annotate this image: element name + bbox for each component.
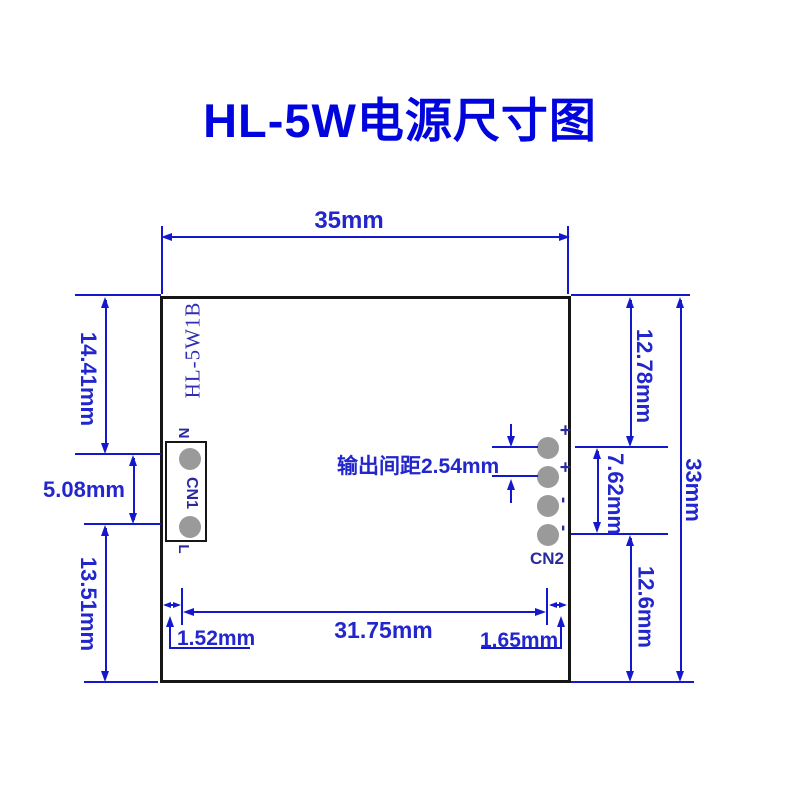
arrow-left-icon: [183, 608, 194, 616]
leader-line-1-65: [560, 626, 562, 648]
dim-tick-bottom-right: [546, 588, 548, 625]
pitch-line-top: [492, 446, 538, 448]
cn2-pin1-polarity: +: [555, 421, 573, 439]
arrow-up-icon: [101, 525, 109, 536]
arrow-up-icon: [626, 297, 634, 308]
dim-line-5-08: [133, 458, 135, 520]
ext-line-left-pin-n: [75, 453, 161, 455]
dim-line-35: [171, 236, 560, 238]
dim-line-13-51: [105, 528, 107, 673]
arrow-right-icon: [535, 608, 546, 616]
silkscreen-model-text: HL-5W1B: [181, 293, 205, 408]
dim-label-right-middle: 7.62mm: [602, 444, 628, 544]
leader-line-1-52: [169, 626, 171, 648]
pitch-leader-bottom: [510, 489, 512, 503]
arrow-down-icon: [129, 513, 137, 524]
arrow-right-icon: [173, 602, 181, 608]
arrow-up-icon: [676, 297, 684, 308]
arrow-down-icon: [101, 443, 109, 454]
dim-label-right-top: 12.78mm: [631, 321, 657, 431]
ext-line-left-pin-l: [84, 523, 161, 525]
cn1-pin-n-pad: [179, 448, 201, 470]
pitch-line-bottom: [492, 475, 538, 477]
cn2-pin4-polarity: -: [554, 519, 572, 537]
dim-label-board-height: 33mm: [680, 455, 706, 525]
arrow-down-icon: [593, 522, 601, 533]
page-title: HL-5W电源尺寸图: [100, 82, 700, 151]
cn2-pin2-polarity: +: [555, 458, 573, 476]
arrow-down-icon: [676, 671, 684, 682]
arrow-left-icon: [549, 602, 557, 608]
ext-line-left-top: [75, 294, 161, 296]
dim-label-left-middle: 5.08mm: [38, 477, 130, 503]
dim-label-bottom-span: 31.75mm: [326, 617, 441, 644]
dim-label-bottom-right-offset: 1.65mm: [480, 629, 558, 653]
cn2-label: CN2: [530, 549, 564, 569]
dim-label-right-bottom: 12.6mm: [633, 560, 659, 655]
arrow-right-icon: [559, 602, 567, 608]
arrow-down-icon: [626, 671, 634, 682]
dim-tick-bottom-left: [181, 588, 183, 625]
dim-label-board-width: 35mm: [294, 207, 404, 235]
dim-line-31-75: [191, 611, 539, 613]
arrow-up-icon: [626, 535, 634, 546]
dim-line-14-41: [105, 300, 107, 445]
dim-label-left-top: 14.41mm: [75, 324, 101, 434]
arrow-right-icon: [559, 233, 570, 241]
arrow-down-icon: [101, 671, 109, 682]
arrow-up-icon: [101, 297, 109, 308]
cn1-pin-l-pad: [179, 516, 201, 538]
cn2-pin3-polarity: -: [554, 491, 572, 509]
arrow-up-icon: [593, 448, 601, 459]
cn2-pin1-pad: [537, 437, 559, 459]
dim-label-left-bottom: 13.51mm: [75, 549, 101, 659]
dim-label-bottom-left-offset: 1.52mm: [177, 627, 255, 651]
cn1-label: CN1: [182, 468, 200, 518]
arrow-left-icon: [163, 602, 171, 608]
dim-line-7-62: [597, 451, 599, 523]
cn1-pin-n-label: N: [176, 425, 192, 441]
dimension-diagram: HL-5W电源尺寸图 HL-5W1B N CN1 L + + - - CN2 输…: [0, 0, 800, 800]
arrow-left-icon: [161, 233, 172, 241]
ext-line-left-bottom: [84, 681, 158, 683]
arrow-up-icon: [129, 455, 137, 466]
pitch-note-label: 输出间距2.54mm: [337, 450, 499, 480]
arrow-down-icon: [507, 436, 515, 447]
ext-line-right-top: [571, 294, 690, 296]
cn1-pin-l-label: L: [176, 541, 192, 557]
